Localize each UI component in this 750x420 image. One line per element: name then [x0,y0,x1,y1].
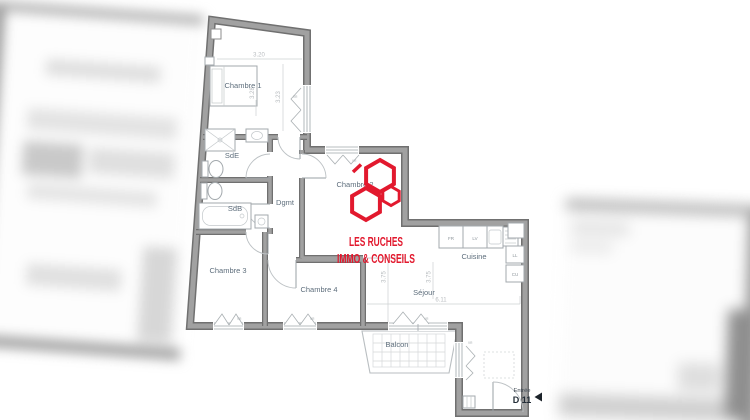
dishwasher-label: LV [472,236,477,241]
dim-sejour-depth-a: 3.75 [382,271,388,283]
room-label-sde: SdE [225,151,239,160]
dim-chambre1-width: 3.20 [253,53,265,59]
cooking-label: CU [512,272,519,277]
shutter-label: VR [237,317,242,321]
wc-bowl [209,161,223,178]
shutter-label: VR [468,341,473,345]
corner-cabinet [508,223,524,238]
fridge-label: FR [448,236,455,241]
room-label-sdb: SdB [228,204,242,213]
entrance-unit-label: D 11 [513,395,532,405]
shutter-label: VR [293,95,298,99]
shutter-label: VR [310,317,315,321]
kitchen-sink [487,226,503,248]
room-label-dgmt: Dgmt [276,198,295,207]
room-label-sejour: Séjour [413,288,435,297]
wc-bowl [208,183,222,200]
room-label-chambre3: Chambre 3 [209,266,246,275]
shutter-label: VR [352,159,357,163]
room-label-cuisine: Cuisine [461,252,486,261]
washing-machine-label: LL [512,253,518,258]
entrance-label: Entrée [513,388,530,394]
gallery-stage: VR VR VR VR VR VR [0,0,750,420]
dim-chambre1-depth: 3.23 [276,91,282,103]
entrance-label-group: Entrée D 11 [513,388,542,405]
small-sink [255,215,268,228]
balcony-group [362,331,457,373]
wc-tank [201,183,207,199]
room-label-chambre1: Chambre 1 [224,81,261,90]
wc-tank [202,161,208,177]
nightstand [205,57,214,65]
dim-sejour-depth-b: 3.75 [427,271,433,283]
shutter-label: VR [424,317,429,321]
logo-line2: IMMO & CONSEILS [337,251,415,266]
entrance-arrow-icon [535,393,543,402]
logo-line1: LES RUCHES [349,234,403,249]
washbasin [246,129,268,142]
column-symbol [211,29,221,39]
room-label-chambre4: Chambre 4 [300,285,337,294]
bathtub [199,203,251,229]
dim-sejour-width: 6.11 [435,298,447,304]
room-label-balcon: Balcon [386,340,409,349]
floorplan-image: VR VR VR VR VR VR [0,0,750,420]
electrical-panel [463,396,475,408]
